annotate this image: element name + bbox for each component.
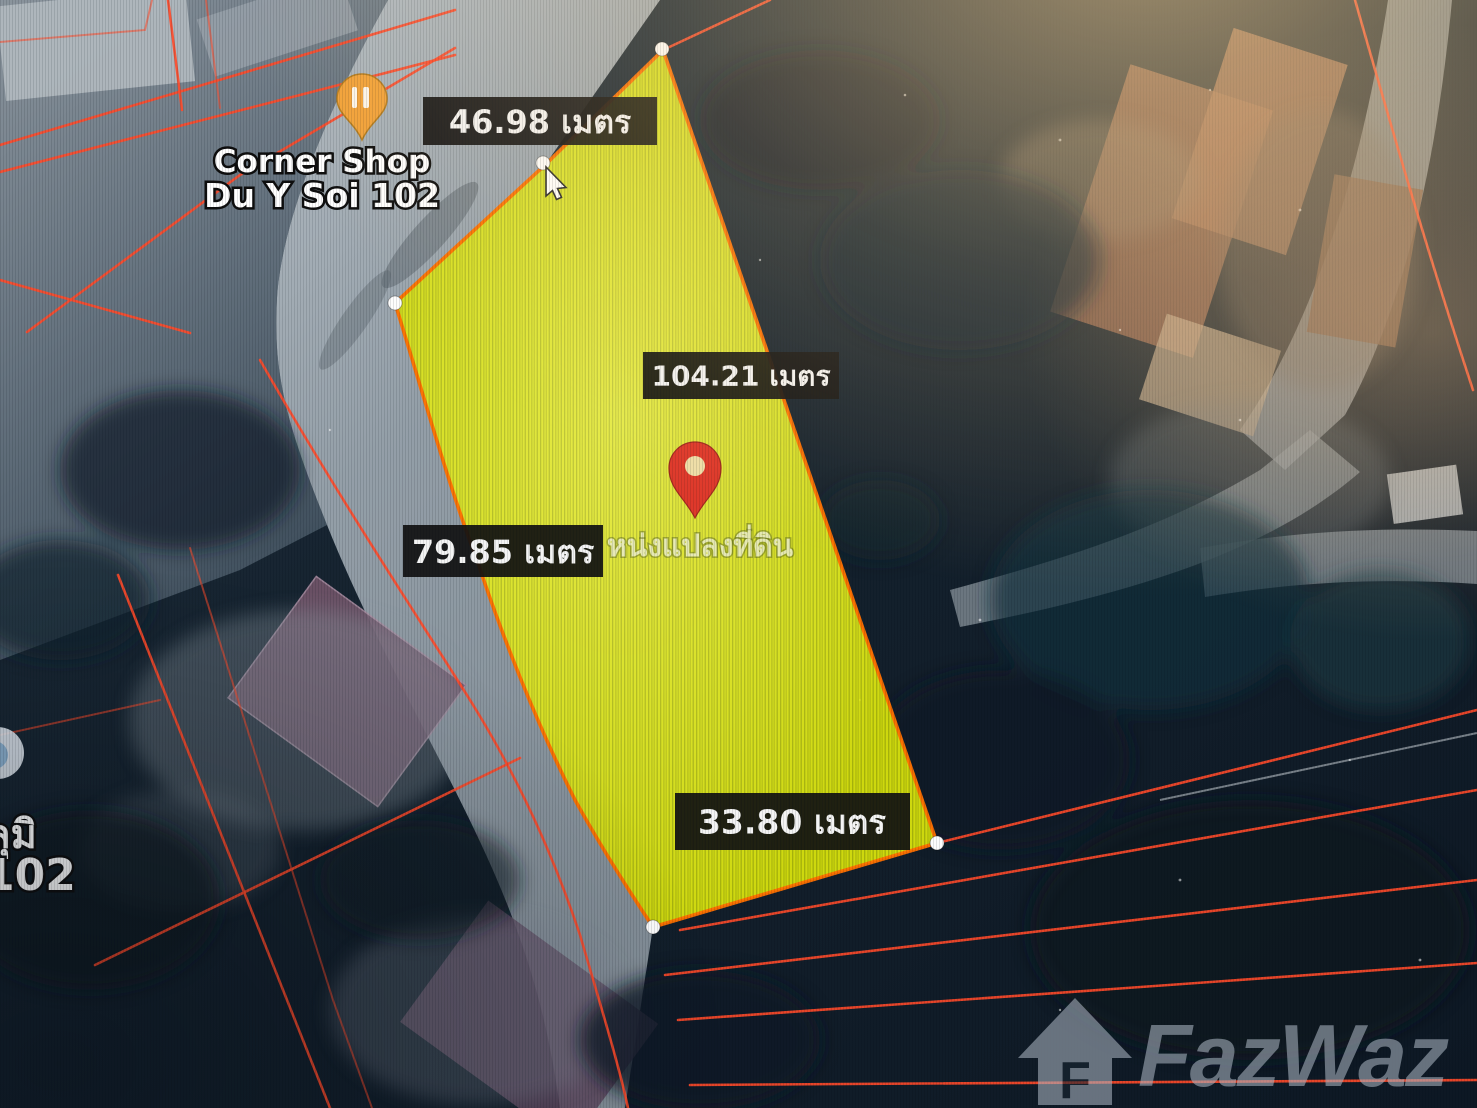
svg-text:F: F — [1059, 1052, 1091, 1108]
vignette — [0, 0, 1477, 1108]
watermark-text: FazWaz — [1138, 1006, 1449, 1105]
map-photo: หน่งแปลงที่ดิน 46.98 เมตร 104.21 เมตร 79… — [0, 0, 1477, 1108]
watermark-logo: F FazWaz — [1018, 998, 1449, 1108]
map-canvas[interactable]: หน่งแปลงที่ดิน 46.98 เมตร 104.21 เมตร 79… — [0, 0, 1477, 1108]
